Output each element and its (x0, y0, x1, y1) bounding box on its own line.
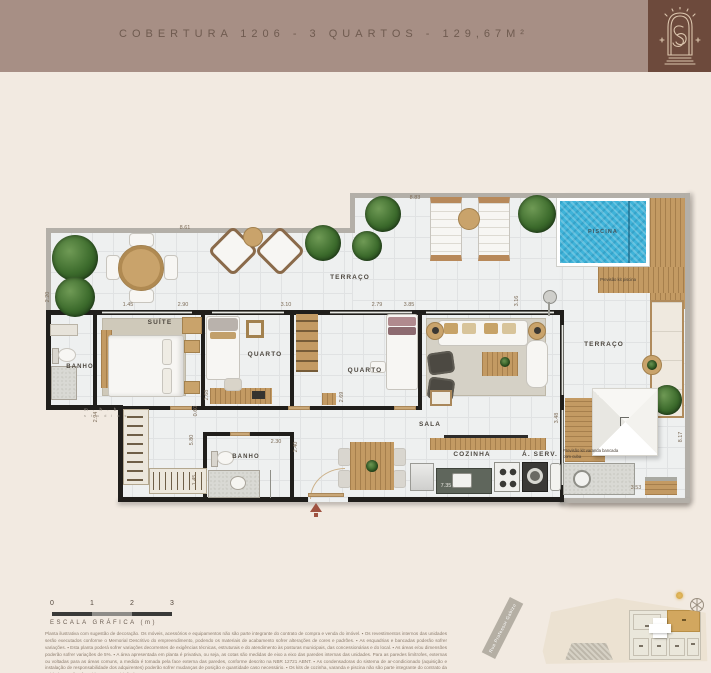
room-label-area-servico: Á. SERV. (512, 451, 568, 458)
dim-8-61: 8.61 (170, 225, 200, 231)
tv (444, 435, 528, 438)
arch-monogram-icon (657, 7, 703, 65)
bathtub-basin (230, 476, 246, 490)
lounger-table (458, 208, 480, 230)
room-label-piscina: PISCINA (588, 229, 618, 235)
plant (55, 277, 95, 317)
sofa-pillow (484, 323, 498, 334)
room-label-suite: SUÍTE (136, 319, 184, 326)
pillow (162, 368, 172, 394)
sofa-pillow (444, 323, 458, 334)
desk-chair (224, 378, 242, 391)
laundry-tank (550, 463, 561, 491)
scale-segment (52, 612, 92, 616)
building-unit (651, 638, 667, 656)
dim-3-10: 3.10 (274, 302, 298, 308)
pool-water: PISCINA (560, 201, 646, 263)
note-kit-piscina: Previsão kit piscina (576, 277, 660, 282)
open-wardrobe (296, 314, 318, 372)
suite-dresser (182, 317, 202, 334)
door-banho2 (230, 432, 250, 436)
partition (270, 470, 271, 498)
room-label-banho-suite: BANHO (58, 364, 102, 370)
sofa-pillow (502, 323, 516, 334)
pool-lane-line (628, 201, 630, 263)
pillow (388, 317, 416, 326)
site-keymap: Rua Professor Gabizo (478, 583, 711, 673)
veranda-sink (573, 470, 591, 488)
tower-core (649, 624, 671, 633)
highlighted-unit (667, 610, 700, 632)
dim-2-69: 2.69 (339, 385, 345, 409)
building-unit (687, 638, 699, 656)
page-title: COBERTURA 1206 - 3 QUARTOS - 129,67M² (0, 28, 648, 40)
plant (518, 195, 556, 233)
pillow (388, 327, 416, 335)
floor-plan-page: COBERTURA 1206 - 3 QUARTOS - 129,67M² (0, 0, 711, 673)
dining-chair (393, 448, 406, 466)
entry-arrow-icon (310, 503, 322, 512)
street-name: Rua Professor Gabizo (488, 603, 517, 654)
terrace-chair (164, 255, 178, 280)
plant (647, 360, 657, 370)
dim-3-48: 3.48 (554, 406, 560, 430)
toilet (58, 348, 76, 362)
room-label-sala: SALA (406, 421, 454, 428)
pillow (210, 332, 236, 339)
plant (500, 357, 510, 367)
dim-1-45b: 1.45 (192, 468, 198, 492)
plant (366, 460, 378, 472)
wall (350, 193, 355, 233)
dim-0-60: 0.60 (193, 399, 199, 423)
terrace-chair (129, 289, 154, 303)
site-plot (541, 596, 709, 666)
fridge (410, 463, 434, 491)
sun-lounger (478, 197, 510, 261)
door-quarto2 (394, 406, 416, 410)
wall (290, 310, 294, 410)
entry-door (308, 493, 344, 497)
lamp (432, 327, 439, 334)
dim-2-40: 2.40 (293, 435, 299, 459)
terrace-round-table (118, 245, 164, 291)
pouf (430, 390, 452, 406)
wall (560, 498, 690, 503)
entry-arrow-tail (314, 513, 318, 517)
door-suite (170, 406, 192, 410)
scale-segment (132, 612, 172, 616)
plant (352, 231, 382, 261)
armchair (427, 350, 456, 375)
room-label-banho2: BANHO (226, 454, 266, 460)
bathroom-counter (50, 324, 78, 336)
wall (93, 310, 97, 410)
scale-segment (92, 612, 132, 616)
lamp (534, 327, 541, 334)
dim-2-94: 2.94 (93, 405, 99, 429)
nightstand (184, 340, 200, 353)
pillow (162, 339, 172, 365)
scale-tick-2: 2 (127, 600, 137, 607)
window (212, 311, 284, 314)
street-strip: Rua Professor Gabizo (482, 597, 524, 659)
tv-console (430, 438, 546, 450)
plant (365, 196, 401, 232)
room-label-cozinha: COZINHA (440, 451, 504, 458)
dim-8-17: 8.17 (678, 425, 684, 449)
sun-icon (676, 592, 683, 599)
pool: PISCINA (556, 197, 650, 267)
watermark-line2: s t u d i o s (84, 414, 128, 418)
dim-3-16: 3.16 (514, 289, 520, 313)
floor-plan: PISCINA Previsão kit piscina (44, 185, 692, 513)
stool (322, 393, 336, 405)
graphic-scale: 0 1 2 3 ESCALA GRÁFICA (m) (50, 600, 180, 630)
shower-box (51, 366, 77, 400)
dim-3-53: 3.53 (624, 485, 648, 491)
stove (494, 462, 520, 492)
dim-2-20: 2.20 (45, 285, 51, 309)
window (426, 311, 554, 314)
dim-2-68: 2.68 (204, 383, 210, 407)
dim-2-79: 2.79 (365, 302, 389, 308)
wall-art (246, 320, 264, 338)
closet-shelves (127, 413, 143, 481)
room-label-quarto2: QUARTO (338, 367, 392, 374)
legal-disclaimer: Planta ilustrativa com sugestão de decor… (45, 631, 447, 673)
laptop (252, 391, 265, 399)
suite-bed (108, 335, 184, 397)
daybed-detail (620, 417, 629, 426)
dim-1-45: 1.45 (116, 302, 140, 308)
door-quarto1 (288, 406, 310, 410)
sofa-pillow (462, 323, 476, 334)
sliding-door (561, 325, 564, 395)
header-bar: COBERTURA 1206 - 3 QUARTOS - 129,67M² (0, 0, 711, 72)
building-unit (669, 638, 685, 656)
room-label-terraco-right: TERRAÇO (574, 341, 634, 348)
dim-2-90: 2.90 (171, 302, 195, 308)
nightstand (184, 381, 200, 394)
washer-door (527, 468, 543, 484)
watermark-line1: m . h . b (84, 407, 118, 412)
wall (685, 193, 690, 503)
dim-8-83: 8.83 (400, 195, 430, 201)
dim-3-85: 3.85 (397, 302, 421, 308)
terrace-bench (645, 477, 677, 495)
scale-tick-0: 0 (47, 600, 57, 607)
roof-block (565, 640, 613, 660)
dim-5-80: 5.80 (189, 428, 195, 452)
terrace-side-table (243, 227, 263, 247)
building-unit (633, 638, 649, 656)
window (102, 311, 192, 314)
dining-chair (393, 470, 406, 488)
dim-2-30: 2.30 (264, 439, 288, 445)
wall (418, 310, 422, 410)
chaise (526, 340, 548, 388)
outdoor-shower-icon (543, 290, 557, 304)
scale-tick-3: 3 (167, 600, 177, 607)
note-kit-varanda-1: Previsão kit varanda bancada (563, 448, 618, 453)
scale-tick-1: 1 (87, 600, 97, 607)
room-label-quarto1: QUARTO (238, 351, 292, 358)
brand-logo (648, 0, 711, 72)
scale-label: ESCALA GRÁFICA (m) (50, 620, 157, 626)
pillow (208, 318, 238, 331)
plant (305, 225, 341, 261)
plant (52, 235, 98, 281)
exterior-notch (44, 408, 119, 508)
sun-lounger (430, 197, 462, 261)
dim-7-35: 7.35 (436, 483, 456, 489)
room-label-terraco-top: TERRAÇO (320, 274, 380, 281)
outdoor-shower-pole (548, 302, 550, 316)
